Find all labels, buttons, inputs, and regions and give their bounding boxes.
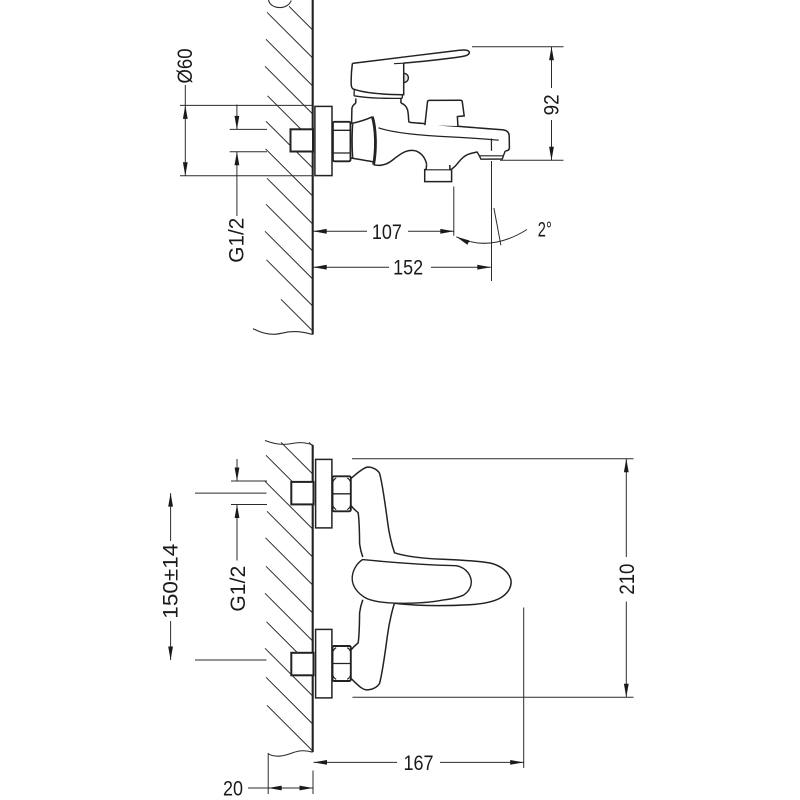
svg-text:20: 20	[223, 778, 243, 800]
svg-text:210: 210	[616, 564, 639, 595]
svg-text:150±14: 150±14	[160, 543, 183, 618]
svg-text:167: 167	[404, 752, 434, 775]
svg-text:107: 107	[372, 221, 402, 244]
svg-text:92: 92	[540, 94, 563, 115]
svg-text:2°: 2°	[538, 219, 552, 242]
svg-text:152: 152	[393, 257, 423, 280]
svg-text:G1/2: G1/2	[227, 566, 250, 612]
svg-text:G1/2: G1/2	[226, 218, 249, 263]
svg-text:Ø60: Ø60	[174, 49, 197, 84]
